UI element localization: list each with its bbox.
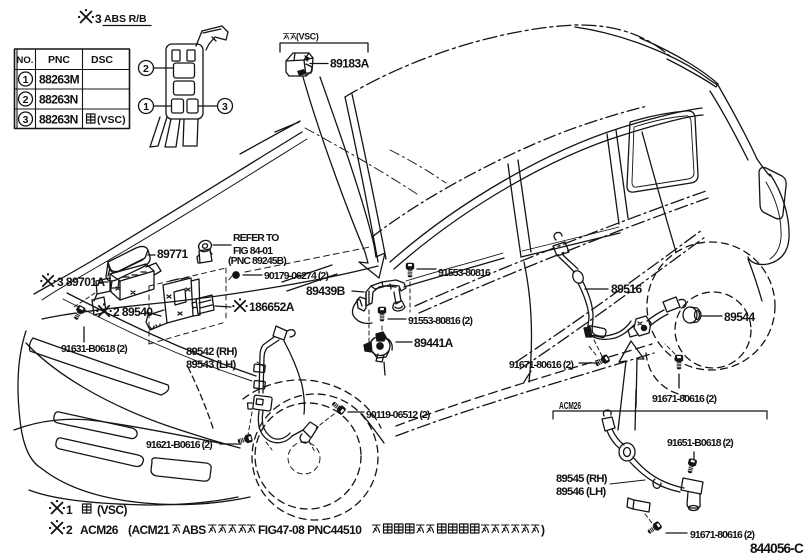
svg-text:88263M: 88263M — [39, 73, 80, 87]
svg-text:REFER TO: REFER TO — [233, 233, 279, 244]
svg-text:89183A: 89183A — [330, 57, 370, 71]
svg-text:2: 2 — [143, 63, 149, 75]
svg-text:(VSC): (VSC) — [296, 32, 319, 42]
svg-text:PNC: PNC — [48, 54, 70, 66]
svg-text:186652A: 186652A — [249, 300, 295, 314]
svg-text:2: 2 — [23, 94, 29, 106]
svg-text:3: 3 — [222, 101, 228, 113]
svg-text:ABS R/B: ABS R/B — [104, 13, 147, 25]
svg-text:DSC: DSC — [91, 54, 113, 66]
svg-text:89441A: 89441A — [414, 336, 454, 350]
svg-text:89544: 89544 — [724, 310, 755, 324]
svg-text:89542 (RH): 89542 (RH) — [186, 346, 238, 358]
svg-text:(VSC): (VSC) — [97, 503, 127, 517]
svg-text:1: 1 — [66, 503, 73, 517]
svg-text:844056-C: 844056-C — [750, 541, 804, 556]
svg-text:): ) — [541, 523, 545, 537]
svg-text:1: 1 — [143, 101, 149, 113]
svg-text:89771: 89771 — [157, 247, 188, 261]
svg-text:89546 (LH): 89546 (LH) — [556, 486, 607, 498]
svg-text:91631-B0618 (2): 91631-B0618 (2) — [61, 344, 127, 355]
svg-text:3 89701A: 3 89701A — [57, 275, 106, 289]
svg-text:91671-80616 (2): 91671-80616 (2) — [690, 530, 754, 541]
svg-text:91553-80816 (2): 91553-80816 (2) — [408, 316, 472, 327]
svg-text:NO.: NO. — [17, 55, 34, 66]
svg-text:89439B: 89439B — [306, 284, 346, 298]
svg-text:91553-80816: 91553-80816 — [438, 268, 491, 279]
svg-text:90179-06274 (2): 90179-06274 (2) — [264, 271, 328, 282]
svg-text:91671-80616 (2): 91671-80616 (2) — [509, 360, 573, 371]
svg-text:2: 2 — [66, 523, 73, 537]
svg-text:ABS: ABS — [182, 523, 206, 537]
svg-text:90119-06512 (2): 90119-06512 (2) — [366, 410, 430, 421]
svg-text:(VSC): (VSC) — [97, 114, 126, 126]
svg-text:(ACM21: (ACM21 — [128, 523, 170, 537]
svg-text:91651-B0618 (2): 91651-B0618 (2) — [667, 438, 733, 449]
svg-text:3: 3 — [95, 12, 102, 26]
svg-text:88263N: 88263N — [39, 113, 78, 127]
svg-text:89543 (LH): 89543 (LH) — [186, 359, 237, 371]
svg-text:89516: 89516 — [611, 282, 642, 296]
svg-text:91621-B0616 (2): 91621-B0616 (2) — [146, 440, 212, 451]
svg-text:89545 (RH): 89545 (RH) — [556, 473, 608, 485]
svg-text:ACM26: ACM26 — [80, 523, 119, 537]
svg-text:91671-80616 (2): 91671-80616 (2) — [652, 394, 716, 405]
svg-text:1: 1 — [23, 74, 29, 86]
svg-text:FIG47-08 PNC44510: FIG47-08 PNC44510 — [258, 523, 362, 537]
svg-text:3: 3 — [23, 114, 29, 126]
svg-text:88263N: 88263N — [39, 93, 78, 107]
svg-text:ACM26: ACM26 — [559, 400, 581, 412]
